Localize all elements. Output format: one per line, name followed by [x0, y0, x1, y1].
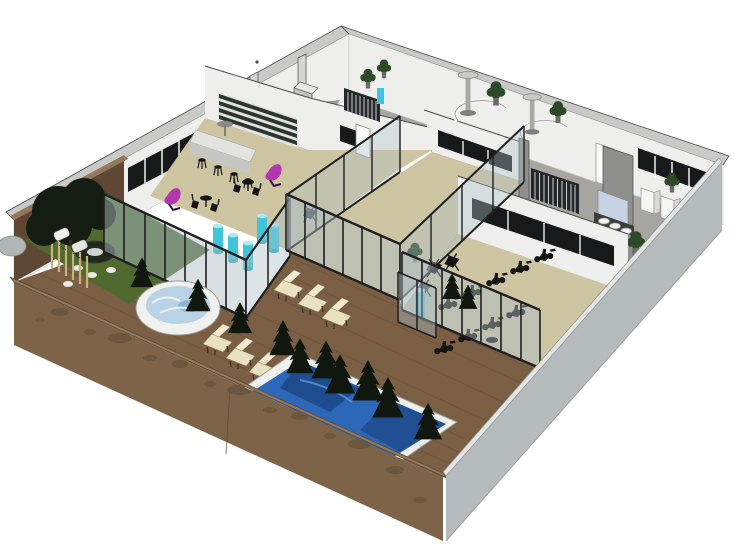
render-speck: [255, 60, 258, 63]
garden-stone: [63, 281, 73, 287]
floorplan-3d-viewport: [0, 0, 735, 544]
garden-stone: [73, 265, 83, 271]
garden-stone: [106, 267, 116, 273]
sink: [599, 218, 610, 224]
toilet-stall: [641, 188, 660, 214]
floorplan-render: [0, 0, 735, 544]
teal-vase: [377, 88, 384, 104]
garden-stone: [87, 272, 97, 278]
boulder: [0, 236, 26, 256]
